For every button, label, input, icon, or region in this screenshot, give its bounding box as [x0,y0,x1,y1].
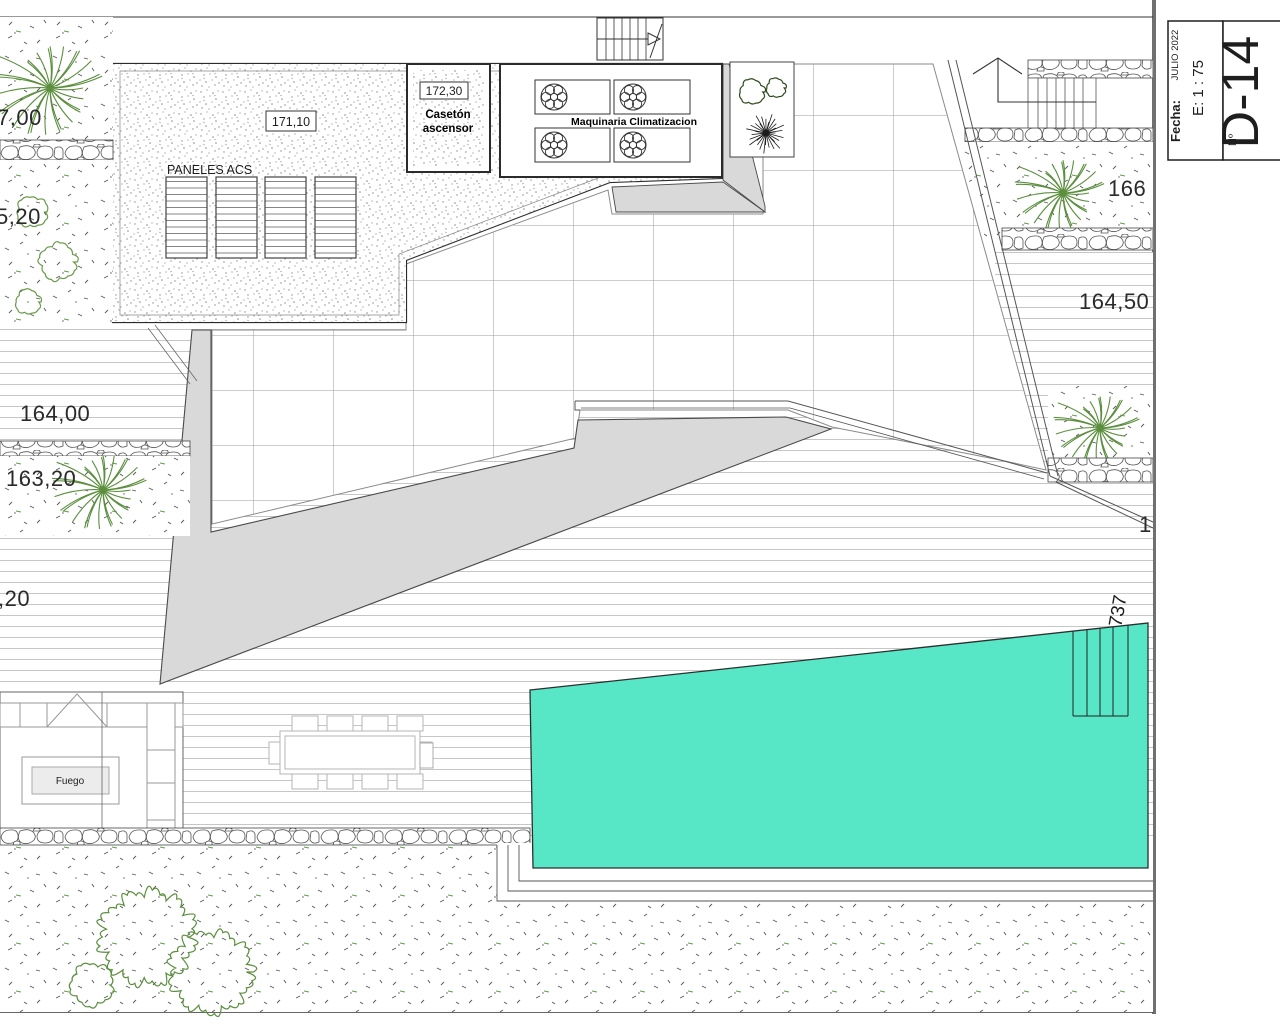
roof-level-label: 171,10 [272,115,310,129]
elevation-label: 163,20 [6,466,76,491]
fan-icon [620,132,646,158]
stone-wall [965,128,1153,142]
sheet-number: D-14 [1212,36,1270,149]
firepit-label: Fuego [56,776,85,787]
firepit-pergola [0,692,183,843]
site-plan-sheet: { "drawing": { "annotations": { "topleft… [0,0,1280,1024]
fan-icon [541,132,567,158]
lift-casing: 172,30 Casetón ascensor [407,64,490,172]
date-label: Fecha: [1168,100,1183,142]
plan-canvas: 171,10 PANELES ACS 172,30 Casetón ascens… [0,0,1280,1024]
elevation-label: 5,20 [0,204,41,229]
scale-value: E: 1 : 75 [1190,60,1207,116]
stone-wall [0,140,113,160]
stone-wall [0,828,530,845]
stone-wall [1002,228,1153,250]
hvac-room: Maquinaria Climatizacion [500,64,722,177]
elevation-label: ,20 [0,586,30,611]
stair-top [597,18,663,60]
elevation-label: 166 [1108,176,1146,201]
panels-label: PANELES ACS [167,163,252,177]
lift-name-line2: ascensor [423,123,474,135]
deck-step [420,743,433,768]
stone-wall [0,441,190,456]
fan-icon [620,84,646,110]
stone-wall [1048,458,1153,482]
date-value: JULIO 2022 [1170,30,1181,81]
fan-icon [541,84,567,110]
stone-wall [1028,60,1153,78]
elevation-label: 164,00 [20,401,90,426]
lift-name-line1: Casetón [425,109,470,121]
hvac-label: Maquinaria Climatizacion [571,116,697,128]
elevation-label: 7,00 [0,105,42,130]
elevation-label: 1 [1139,512,1152,537]
elevation-label: 164,50 [1079,289,1149,314]
dining-table-set [269,716,432,789]
lift-level-label: 172,30 [426,84,463,98]
roof-planter [730,62,794,157]
title-block: Fecha: JULIO 2022 E: 1 : 75 Nº D-14 [1155,0,1280,1024]
